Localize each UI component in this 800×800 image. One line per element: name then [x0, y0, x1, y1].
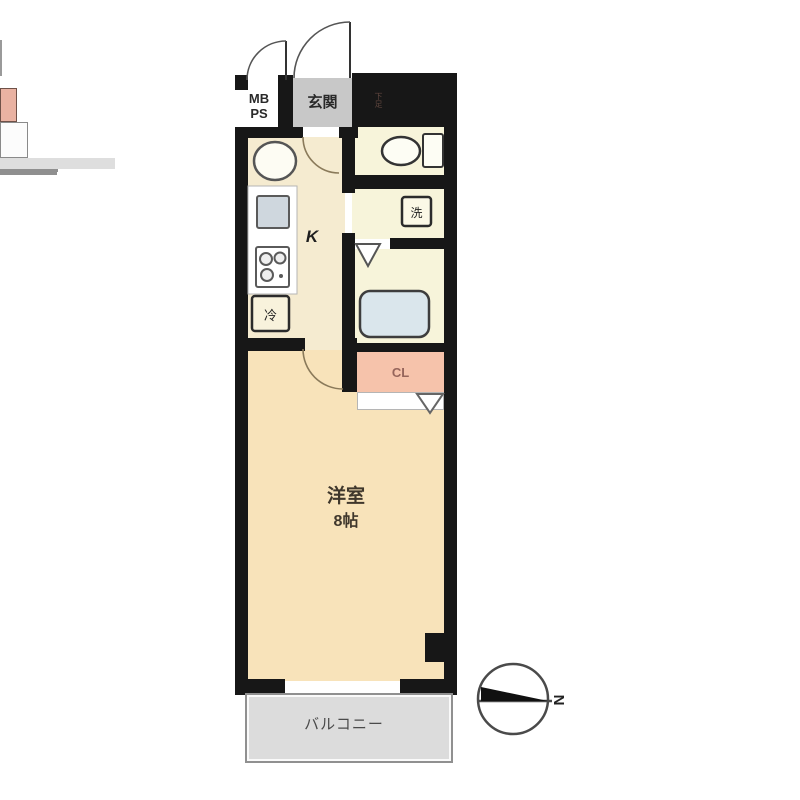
burner-icon — [275, 253, 286, 264]
sink-oval-icon — [254, 142, 296, 180]
entrance-door-arc — [294, 22, 350, 78]
fixtures-layer — [0, 0, 800, 800]
main-room-size: 8帖 — [248, 511, 444, 533]
compass-north-label: N — [550, 691, 568, 709]
kitchen-door-arc — [303, 137, 339, 173]
floor-plan: MB PS 玄関 下足 K 冷 洗 CL 洋室 8帖 バルコニー N — [0, 0, 800, 800]
bathroom-folding-door-icon — [356, 244, 380, 266]
burner-icon — [260, 253, 272, 265]
washer-label: 洗 — [402, 202, 431, 222]
mbps-door-arc — [247, 41, 286, 80]
refrigerator-label: 冷 — [252, 303, 289, 325]
toilet-tank-icon — [423, 134, 443, 167]
closet-folding-door-icon — [417, 394, 443, 413]
kitchen-label: K — [300, 226, 324, 248]
main-room-label: 洋室 8帖 — [248, 484, 444, 533]
bathtub-icon — [360, 291, 429, 337]
shoe-box-label: 下足 — [370, 84, 387, 116]
burner-icon — [261, 269, 273, 281]
stove-knob-icon — [279, 274, 283, 278]
main-room-door-arc — [303, 349, 343, 389]
entrance-label: 玄関 — [293, 88, 352, 114]
mbps-label: MB PS — [240, 88, 278, 126]
sink-square-icon — [257, 196, 289, 228]
toilet-bowl-icon — [382, 137, 420, 165]
main-room-name: 洋室 — [248, 484, 444, 511]
closet-label: CL — [357, 362, 444, 382]
balcony-label: バルコニー — [245, 712, 443, 734]
